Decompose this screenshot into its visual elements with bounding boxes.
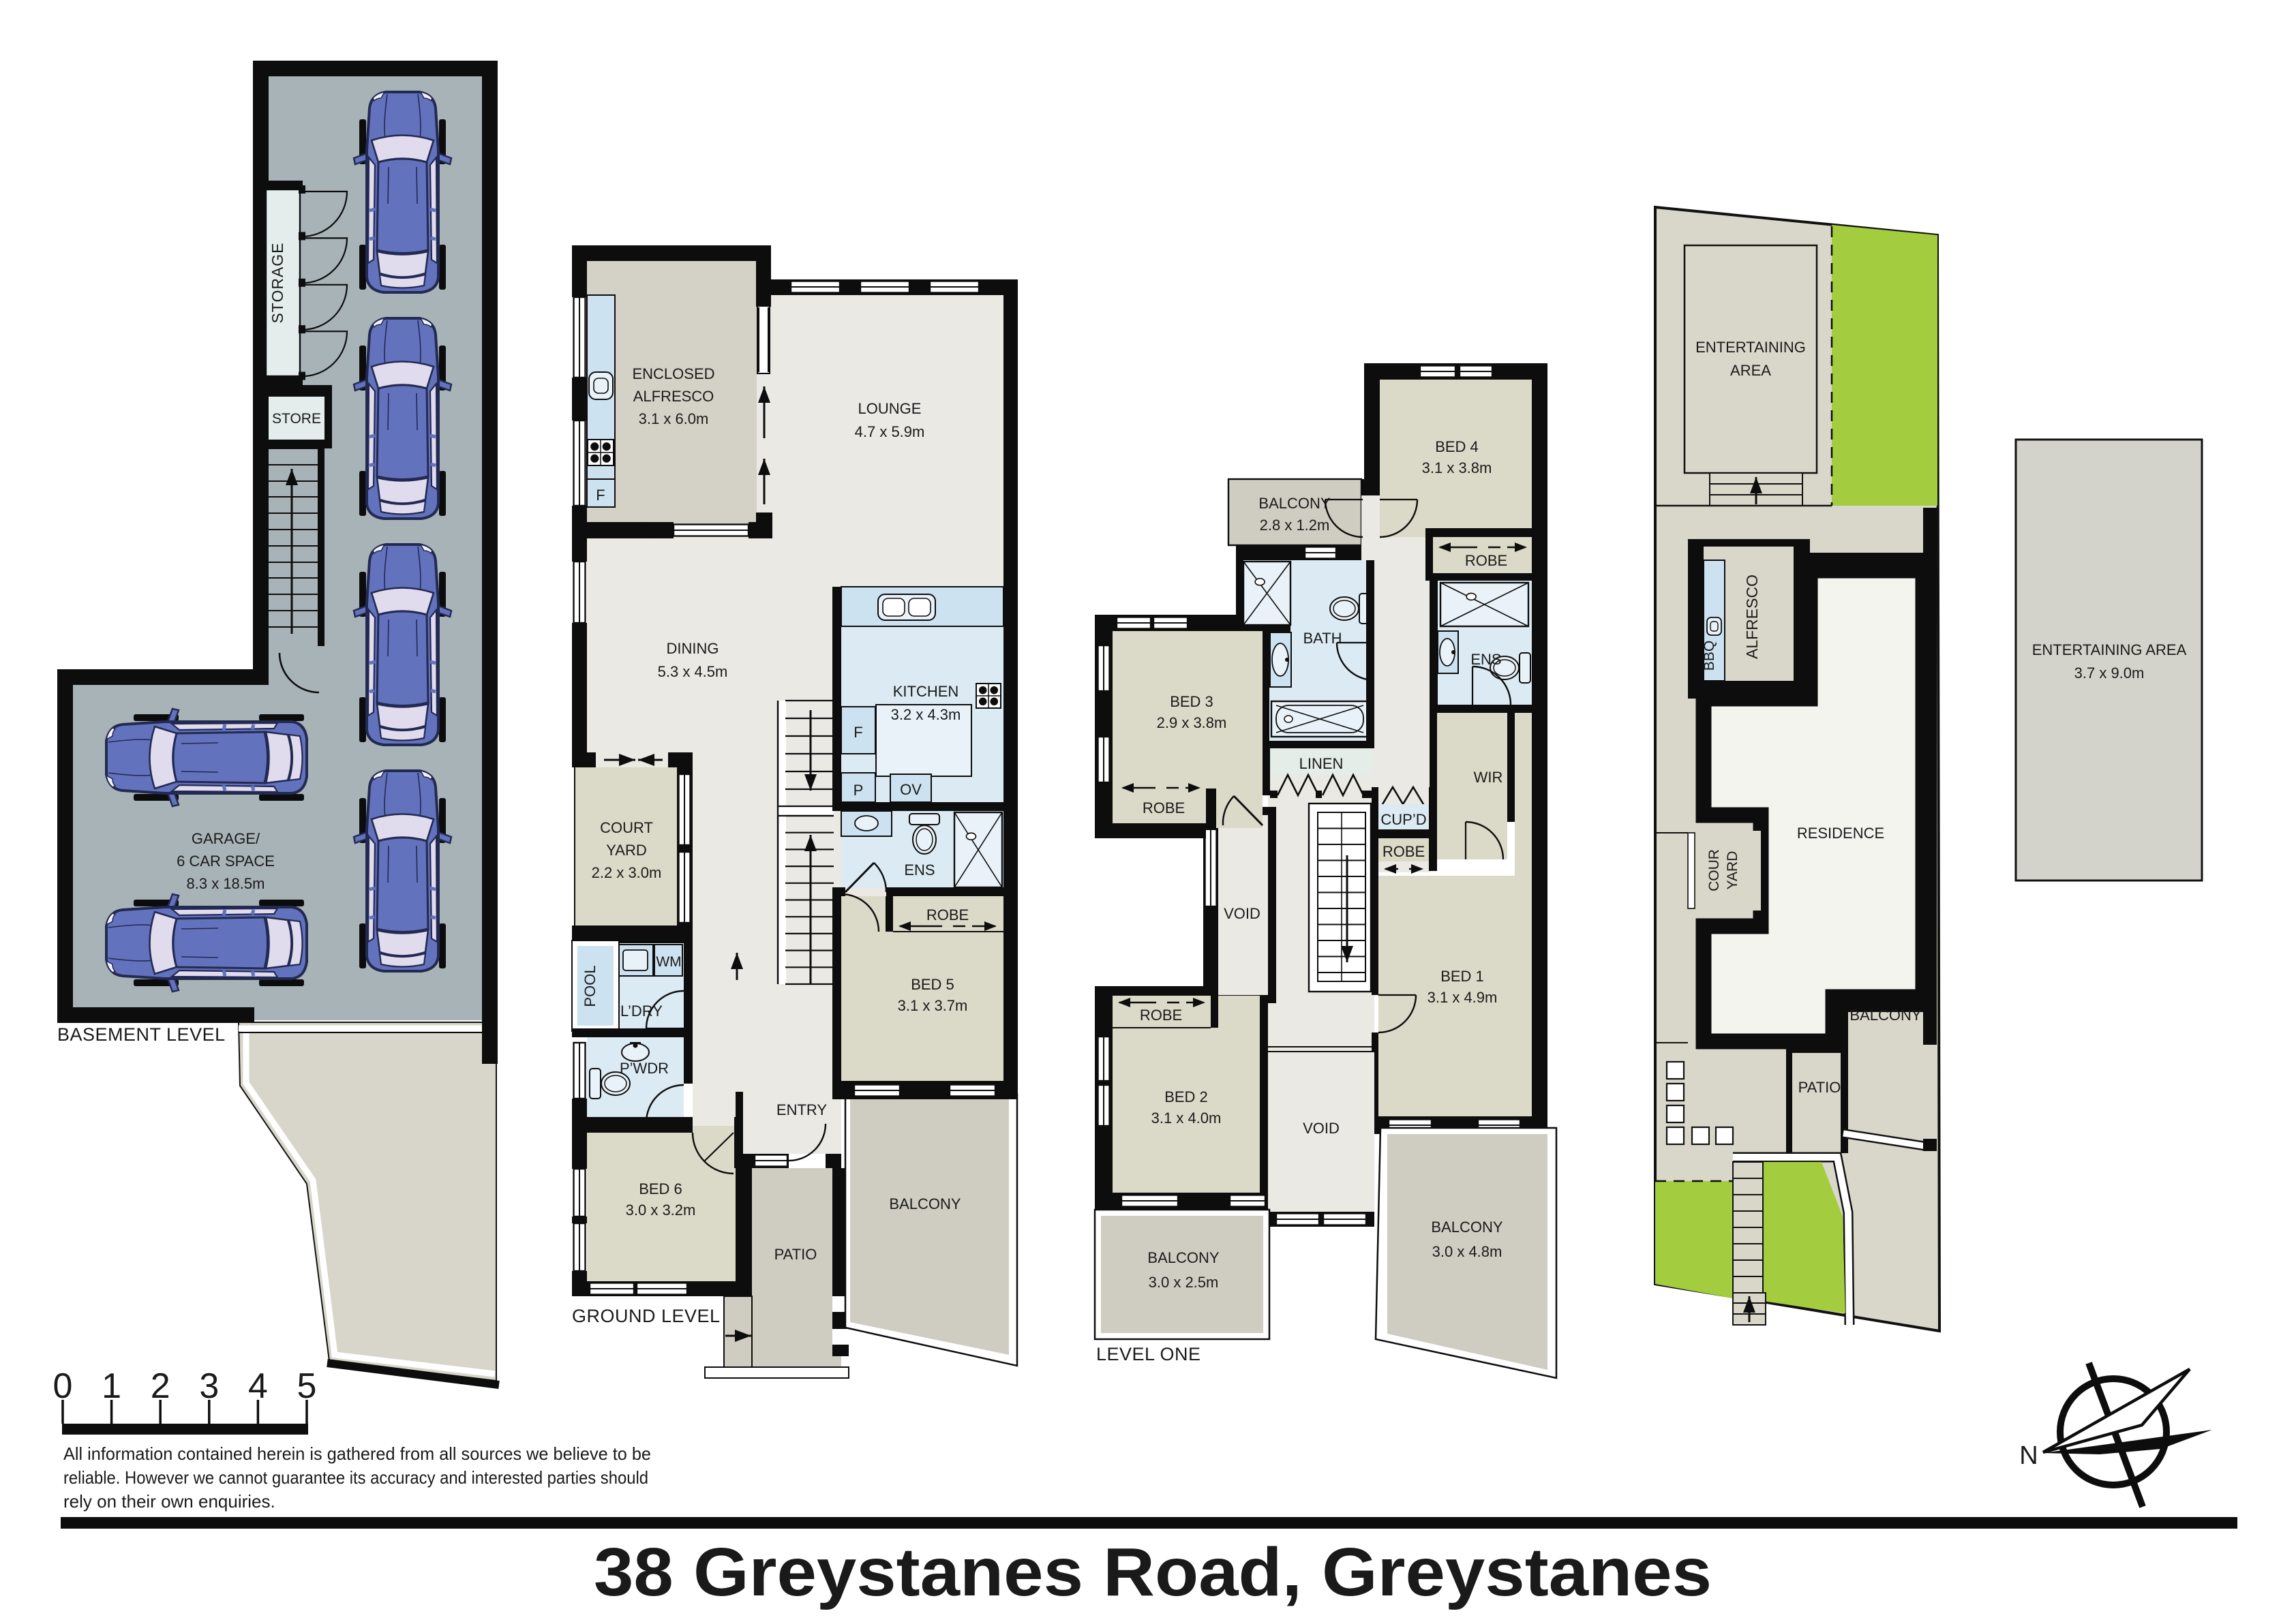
svg-text:BED 1: BED 1 xyxy=(1440,968,1484,985)
svg-text:3.1 x 6.0m: 3.1 x 6.0m xyxy=(639,410,709,427)
svg-text:BED 6: BED 6 xyxy=(639,1180,682,1197)
svg-text:6 CAR SPACE: 6 CAR SPACE xyxy=(177,853,275,870)
svg-text:2.2 x 3.0m: 2.2 x 3.0m xyxy=(592,864,662,881)
svg-text:BED 2: BED 2 xyxy=(1164,1088,1208,1105)
svg-text:2.9 x 3.8m: 2.9 x 3.8m xyxy=(1157,714,1227,731)
svg-text:STORE: STORE xyxy=(272,411,321,427)
svg-text:ENTRY: ENTRY xyxy=(776,1101,827,1118)
svg-text:AREA: AREA xyxy=(1730,362,1771,379)
svg-text:ENTERTAINING AREA: ENTERTAINING AREA xyxy=(2032,641,2187,658)
svg-text:reliable. However we cannot gu: reliable. However we cannot guarantee it… xyxy=(63,1467,648,1488)
svg-text:YARD: YARD xyxy=(606,842,647,859)
svg-text:ENTERTAINING: ENTERTAINING xyxy=(1695,339,1806,356)
svg-text:YARD: YARD xyxy=(1725,851,1740,890)
svg-text:ROBE: ROBE xyxy=(1383,843,1425,860)
svg-text:P’WDR: P’WDR xyxy=(620,1060,669,1077)
svg-text:4.7 x 5.9m: 4.7 x 5.9m xyxy=(855,423,925,440)
svg-text:LINEN: LINEN xyxy=(1299,755,1344,772)
svg-text:ALFRESCO: ALFRESCO xyxy=(1743,575,1761,659)
svg-text:3.0 x 3.2m: 3.0 x 3.2m xyxy=(626,1202,696,1219)
svg-text:LOUNGE: LOUNGE xyxy=(858,400,922,417)
svg-text:ROBE: ROBE xyxy=(1140,1007,1182,1024)
svg-text:COUR: COUR xyxy=(1706,849,1722,891)
svg-text:OV: OV xyxy=(900,781,922,798)
svg-text:8.3 x 18.5m: 8.3 x 18.5m xyxy=(187,875,265,892)
svg-text:38 Greystanes Road, Greystanes: 38 Greystanes Road, Greystanes xyxy=(594,1534,1712,1610)
svg-text:VOID: VOID xyxy=(1303,1120,1340,1137)
svg-text:3.2 x 4.3m: 3.2 x 4.3m xyxy=(891,706,961,723)
svg-text:STORAGE: STORAGE xyxy=(269,242,286,323)
svg-text:F: F xyxy=(596,487,605,504)
svg-text:2.8 x 1.2m: 2.8 x 1.2m xyxy=(1260,517,1330,534)
svg-text:3.1 x 4.0m: 3.1 x 4.0m xyxy=(1151,1110,1222,1127)
svg-text:BED 4: BED 4 xyxy=(1435,438,1479,455)
svg-text:5.3 x 4.5m: 5.3 x 4.5m xyxy=(658,663,728,680)
svg-text:BBQ: BBQ xyxy=(1702,641,1717,671)
svg-text:BED 3: BED 3 xyxy=(1170,693,1213,710)
svg-text:BALCONY: BALCONY xyxy=(1258,495,1330,512)
svg-text:DINING: DINING xyxy=(667,640,719,657)
svg-text:LEVEL ONE: LEVEL ONE xyxy=(1096,1344,1201,1364)
svg-text:BALCONY: BALCONY xyxy=(1431,1219,1502,1236)
svg-text:ROBE: ROBE xyxy=(1465,552,1507,569)
svg-text:N: N xyxy=(2019,1441,2038,1470)
svg-text:All information contained here: All information contained herein is gath… xyxy=(63,1443,651,1464)
svg-text:3.0 x 2.5m: 3.0 x 2.5m xyxy=(1149,1274,1219,1291)
svg-text:ENS: ENS xyxy=(1470,651,1501,668)
svg-text:GARAGE/: GARAGE/ xyxy=(192,830,260,847)
svg-text:F: F xyxy=(854,724,862,741)
svg-text:3.0 x 4.8m: 3.0 x 4.8m xyxy=(1432,1243,1502,1260)
svg-text:BALCONY: BALCONY xyxy=(1147,1249,1219,1266)
svg-text:WM: WM xyxy=(656,954,681,970)
svg-text:P: P xyxy=(854,782,864,799)
svg-text:BASEMENT LEVEL: BASEMENT LEVEL xyxy=(57,1024,226,1045)
svg-text:BED 5: BED 5 xyxy=(911,976,954,993)
svg-text:VOID: VOID xyxy=(1224,905,1260,922)
svg-text:BALCONY: BALCONY xyxy=(889,1195,961,1212)
svg-text:ROBE: ROBE xyxy=(1143,799,1185,816)
svg-text:L’DRY: L’DRY xyxy=(620,1003,663,1020)
svg-text:PATIO: PATIO xyxy=(774,1246,817,1263)
svg-text:PATIO: PATIO xyxy=(1798,1079,1841,1096)
svg-text:BALCONY: BALCONY xyxy=(1849,1007,1921,1024)
svg-text:CUP’D: CUP’D xyxy=(1380,811,1426,828)
svg-text:3.1 x 3.8m: 3.1 x 3.8m xyxy=(1422,459,1492,476)
svg-text:ALFRESCO: ALFRESCO xyxy=(633,388,714,405)
svg-text:rely on their own enquiries.: rely on their own enquiries. xyxy=(63,1491,275,1512)
svg-text:WIR: WIR xyxy=(1474,769,1503,786)
svg-text:ENCLOSED: ENCLOSED xyxy=(632,365,714,382)
svg-text:GROUND LEVEL: GROUND LEVEL xyxy=(572,1306,721,1326)
svg-text:ROBE: ROBE xyxy=(926,906,969,923)
svg-text:KITCHEN: KITCHEN xyxy=(893,683,959,700)
svg-text:RESIDENCE: RESIDENCE xyxy=(1797,825,1884,842)
svg-text:3.1 x 4.9m: 3.1 x 4.9m xyxy=(1428,989,1498,1006)
svg-text:COURT: COURT xyxy=(600,819,653,836)
svg-text:ENS: ENS xyxy=(904,861,935,878)
svg-text:3.1 x 3.7m: 3.1 x 3.7m xyxy=(898,997,968,1014)
svg-text:3.7 x 9.0m: 3.7 x 9.0m xyxy=(2074,664,2145,682)
svg-text:POOL: POOL xyxy=(581,965,599,1007)
